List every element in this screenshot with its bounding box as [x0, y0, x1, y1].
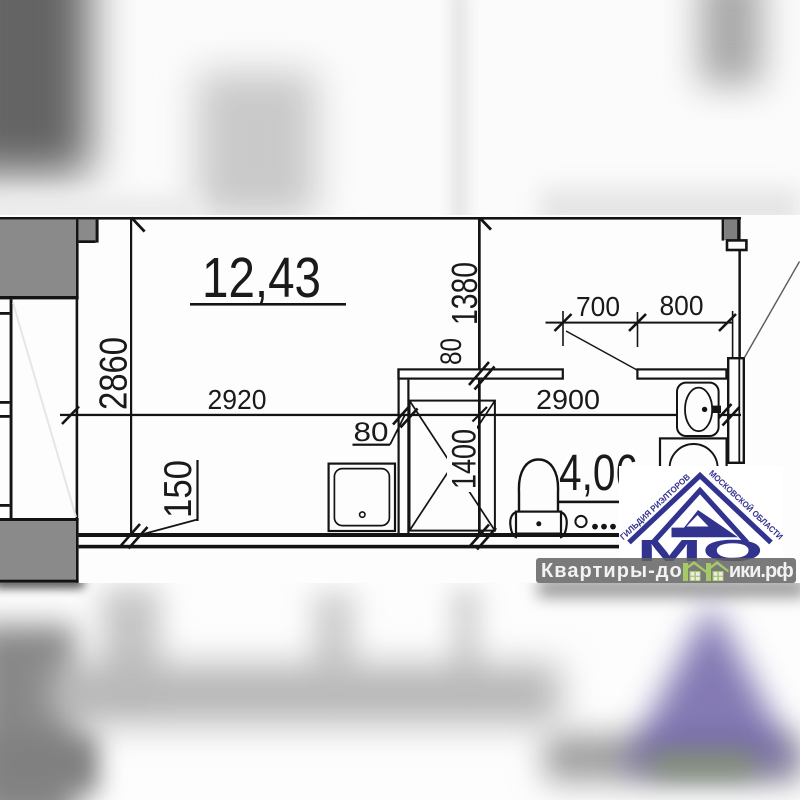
svg-text:2900: 2900	[536, 384, 600, 415]
svg-text:800: 800	[660, 290, 704, 321]
svg-text:80: 80	[354, 417, 389, 447]
svg-text:2860: 2860	[93, 337, 136, 410]
svg-text:700: 700	[576, 291, 620, 322]
svg-text:80: 80	[435, 338, 468, 365]
svg-text:1380: 1380	[444, 262, 485, 325]
svg-text:2920: 2920	[208, 384, 267, 415]
svg-text:150: 150	[157, 460, 200, 518]
svg-text:МО: МО	[637, 533, 764, 561]
svg-text:12,43: 12,43	[202, 246, 321, 310]
svg-text:1400: 1400	[446, 429, 484, 489]
